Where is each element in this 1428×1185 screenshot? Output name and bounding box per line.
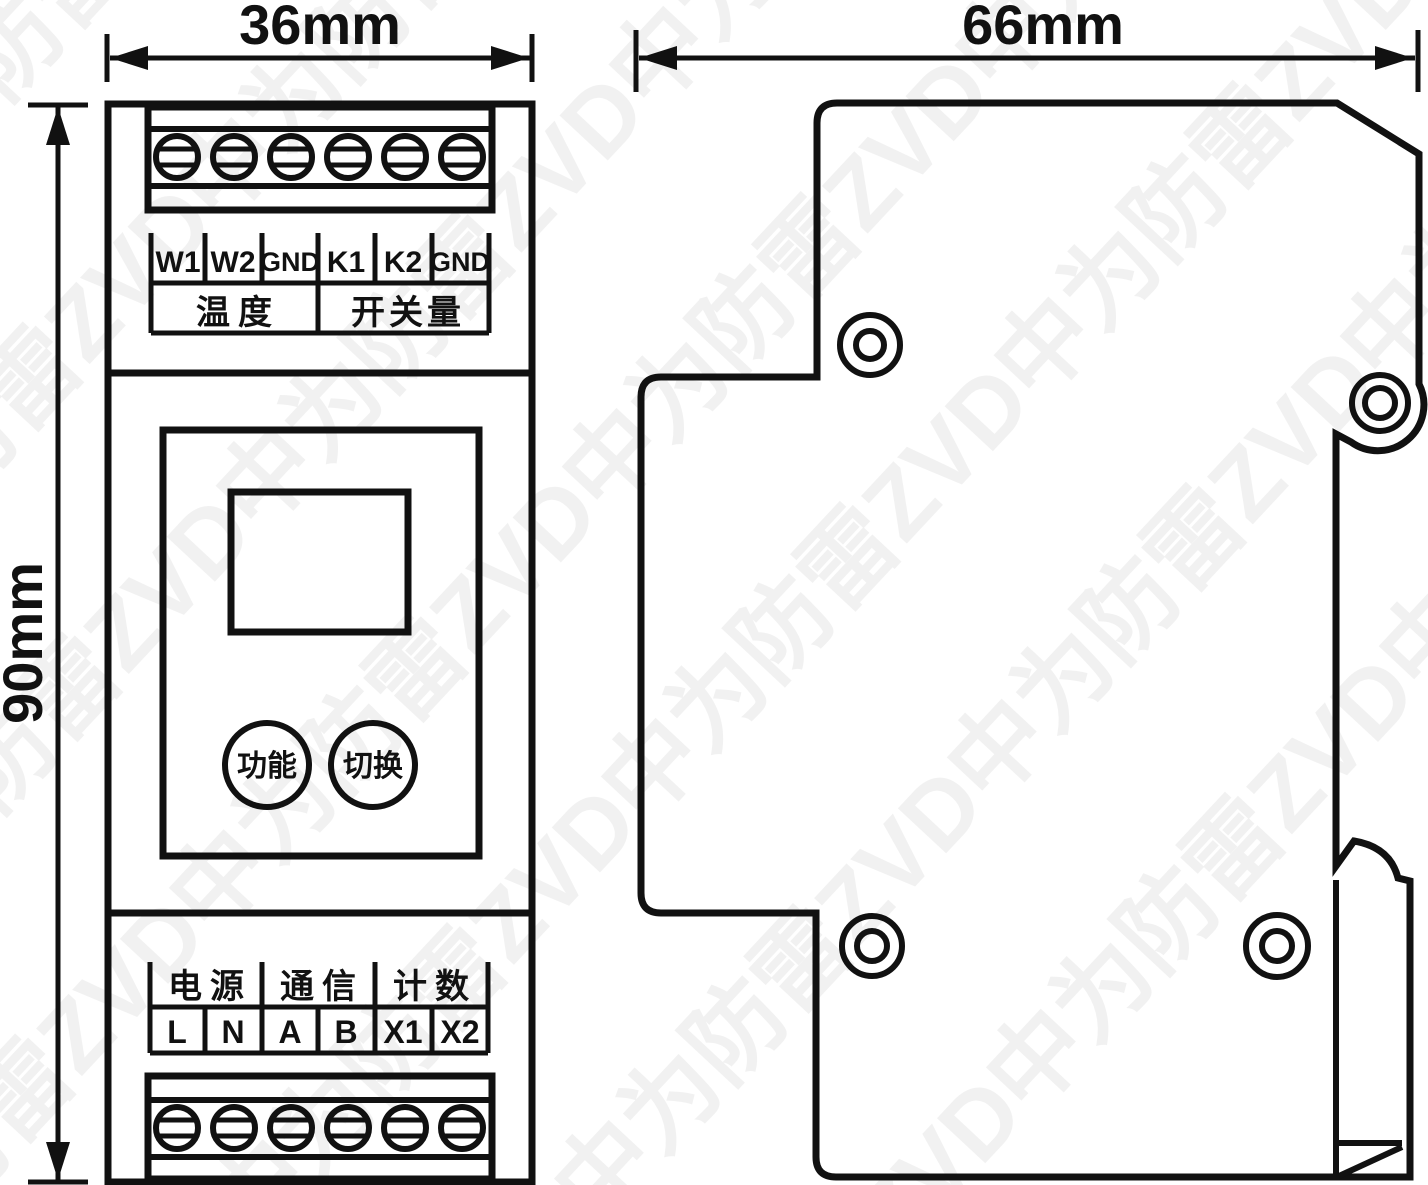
dim-arrow-top <box>46 107 70 145</box>
group-label-temperature: 温度 <box>196 294 280 332</box>
toggle-button-label: 切换 <box>343 750 404 783</box>
terminal-label-a: A <box>278 1014 301 1050</box>
terminal-label-gnd: GND <box>430 247 490 277</box>
terminal-label-n: N <box>221 1014 244 1050</box>
screw-hole-icon <box>840 315 900 375</box>
group-label-switch: 开关量 <box>351 294 465 332</box>
screw-terminal-icon <box>441 136 483 178</box>
dim-label-90mm: 90mm <box>0 562 54 724</box>
screw-terminal-icon <box>156 1107 198 1149</box>
terminal-label-k2: K2 <box>384 246 422 279</box>
screw-terminal-icon <box>441 1107 483 1149</box>
terminal-label-l: L <box>167 1014 187 1050</box>
terminal-label-x2: X2 <box>440 1014 479 1050</box>
terminal-label-x1: X1 <box>383 1014 422 1050</box>
function-button-label: 功能 <box>237 750 297 783</box>
terminal-label-k1: K1 <box>327 246 365 279</box>
group-label-count: 计数 <box>393 968 477 1006</box>
screw-terminal-icon <box>384 136 426 178</box>
terminal-label-w2: W2 <box>211 246 256 279</box>
dim-arrow-right <box>491 46 529 70</box>
screw-hole-icon <box>1246 915 1308 977</box>
terminal-label-gnd: GND <box>260 247 320 277</box>
group-label-power: 电源 <box>168 968 252 1006</box>
clip-spring-line <box>1339 1147 1402 1176</box>
screw-terminal-icon <box>327 136 369 178</box>
drawing-canvas: ZVD中为防雷ZVD中为防雷ZVD中为防雷ZVD中为防雷ZVD中为防雷 ZVD中… <box>0 0 1428 1185</box>
dim-label-66mm: 66mm <box>962 0 1124 56</box>
dim-arrow-left <box>110 46 148 70</box>
dim-label-36mm: 36mm <box>239 0 401 56</box>
terminal-label-w1: W1 <box>156 246 201 279</box>
terminal-label-b: B <box>334 1014 357 1050</box>
group-label-comm: 通信 <box>280 968 364 1006</box>
dim-arrow-bottom <box>46 1142 70 1180</box>
